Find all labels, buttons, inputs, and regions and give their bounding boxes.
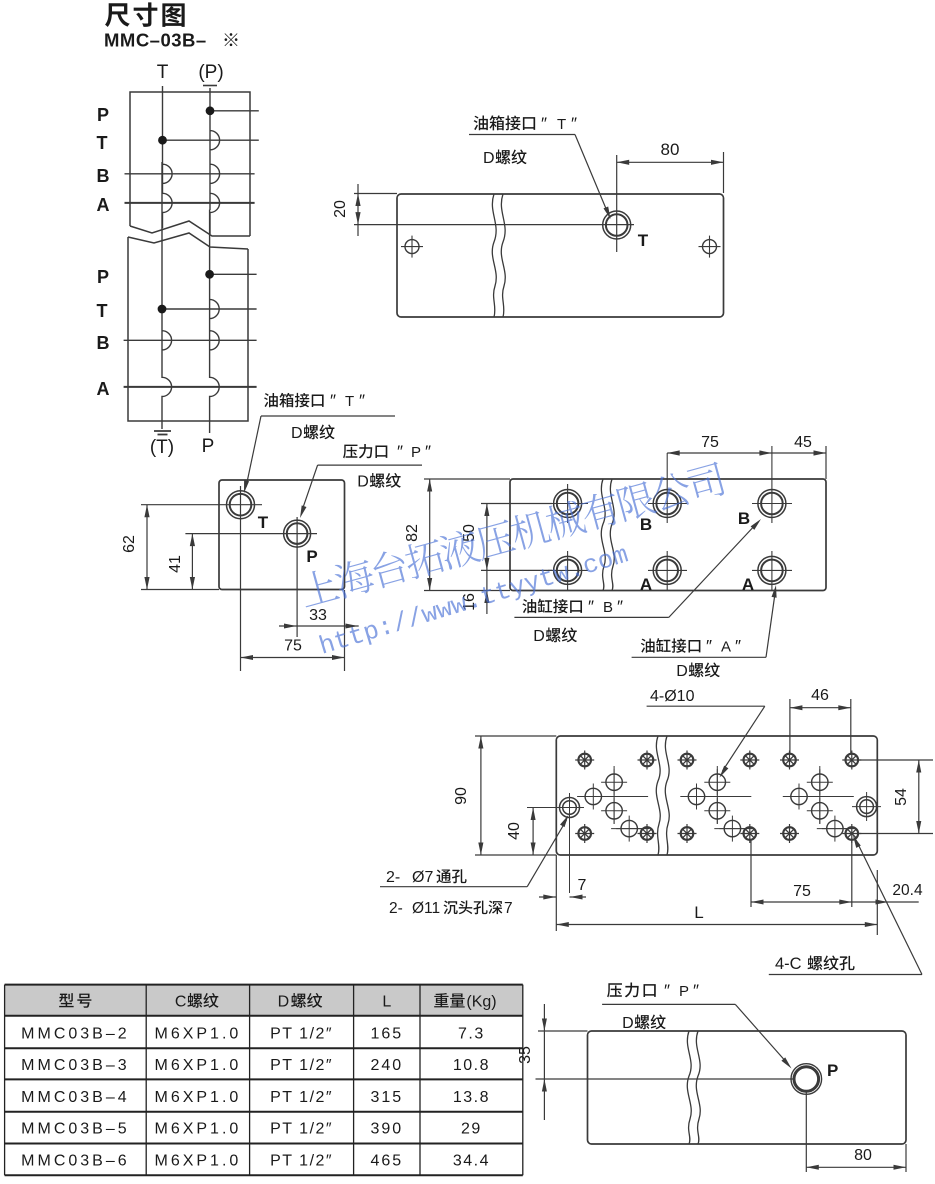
- svg-text:B: B: [640, 515, 652, 534]
- svg-text:P: P: [679, 983, 689, 1000]
- svg-text:L: L: [694, 903, 703, 922]
- svg-text:MMC–03B–: MMC–03B–: [104, 30, 207, 51]
- svg-text:D: D: [533, 628, 545, 645]
- svg-text:33: 33: [309, 607, 327, 624]
- svg-text:″: ″: [330, 391, 336, 410]
- svg-text:M6XP1.0: M6XP1.0: [154, 1121, 241, 1138]
- svg-text:P: P: [97, 267, 109, 287]
- svg-text:T: T: [97, 133, 108, 153]
- svg-text:A: A: [742, 575, 754, 594]
- svg-text:D: D: [622, 1015, 634, 1032]
- svg-text:T: T: [345, 393, 354, 410]
- svg-text:390: 390: [370, 1121, 403, 1138]
- svg-text:P: P: [202, 436, 215, 457]
- svg-text:7: 7: [578, 877, 587, 894]
- svg-text:M6XP1.0: M6XP1.0: [154, 1153, 241, 1170]
- svg-text:″: ″: [359, 391, 365, 410]
- svg-text:7: 7: [504, 900, 513, 917]
- svg-text:MMC03B–6: MMC03B–6: [21, 1153, 129, 1170]
- svg-text:4-C: 4-C: [775, 955, 802, 973]
- svg-text:2-: 2-: [386, 869, 400, 886]
- svg-text:MMC03B–2: MMC03B–2: [21, 1025, 129, 1042]
- svg-text:T: T: [157, 62, 169, 83]
- svg-text:A: A: [640, 575, 652, 594]
- svg-text:62: 62: [121, 535, 138, 553]
- svg-text:240: 240: [370, 1057, 403, 1074]
- svg-text:40: 40: [506, 822, 523, 840]
- svg-text:54: 54: [893, 788, 910, 806]
- svg-text:13.8: 13.8: [453, 1089, 490, 1106]
- svg-text:2-: 2-: [389, 900, 403, 917]
- svg-text:B: B: [603, 599, 613, 616]
- svg-text:″: ″: [541, 114, 547, 133]
- svg-text:P: P: [411, 444, 421, 461]
- svg-text:M6XP1.0: M6XP1.0: [154, 1089, 241, 1106]
- svg-text:T: T: [97, 301, 108, 321]
- svg-text:90: 90: [453, 787, 470, 805]
- svg-text:75: 75: [701, 434, 719, 451]
- svg-text:PT 1/2″: PT 1/2″: [270, 1057, 333, 1074]
- svg-text:41: 41: [167, 555, 184, 573]
- svg-text:(Kg): (Kg): [466, 994, 496, 1011]
- svg-text:45: 45: [794, 434, 812, 451]
- svg-text:(T): (T): [150, 437, 174, 458]
- svg-text:PT 1/2″: PT 1/2″: [270, 1153, 333, 1170]
- svg-text:80: 80: [854, 1147, 872, 1164]
- svg-text:D: D: [357, 474, 369, 491]
- svg-text:D: D: [278, 994, 290, 1011]
- svg-text:7.3: 7.3: [458, 1025, 485, 1042]
- svg-text:P: P: [97, 105, 109, 125]
- svg-text:80: 80: [661, 140, 680, 159]
- svg-text:PT 1/2″: PT 1/2″: [270, 1025, 333, 1042]
- svg-text:465: 465: [370, 1153, 403, 1170]
- svg-text:34.4: 34.4: [453, 1153, 490, 1170]
- svg-text:PT 1/2″: PT 1/2″: [270, 1121, 333, 1138]
- svg-text:MMC03B–3: MMC03B–3: [21, 1057, 129, 1074]
- svg-text:″: ″: [735, 637, 741, 656]
- svg-text:P: P: [827, 1061, 838, 1080]
- svg-text:MMC03B–5: MMC03B–5: [21, 1121, 129, 1138]
- svg-text:″: ″: [571, 114, 577, 133]
- svg-text:M6XP1.0: M6XP1.0: [154, 1025, 241, 1042]
- svg-text:B: B: [738, 509, 750, 528]
- svg-text:A: A: [97, 195, 110, 215]
- svg-text:MMC03B–4: MMC03B–4: [21, 1089, 129, 1106]
- svg-text:46: 46: [811, 687, 829, 704]
- svg-text:4-Ø10: 4-Ø10: [650, 688, 695, 705]
- svg-text:20.4: 20.4: [892, 882, 923, 899]
- svg-text:A: A: [97, 379, 110, 399]
- svg-text:D: D: [483, 150, 495, 167]
- svg-text:315: 315: [370, 1089, 403, 1106]
- svg-text:T: T: [258, 513, 269, 532]
- svg-text:″: ″: [588, 597, 594, 616]
- svg-text:D: D: [291, 425, 303, 442]
- svg-text:82: 82: [404, 524, 421, 542]
- svg-text:A: A: [721, 639, 731, 656]
- svg-text:L: L: [382, 994, 391, 1011]
- svg-text:B: B: [97, 333, 110, 353]
- svg-text:″: ″: [617, 597, 623, 616]
- svg-text:75: 75: [284, 638, 302, 655]
- svg-text:(P): (P): [198, 62, 223, 83]
- svg-text:29: 29: [461, 1121, 482, 1138]
- svg-text:″: ″: [693, 981, 699, 1000]
- svg-text:C: C: [175, 994, 187, 1011]
- svg-text:Ø7: Ø7: [412, 869, 433, 886]
- svg-text:PT 1/2″: PT 1/2″: [270, 1089, 333, 1106]
- svg-text:75: 75: [793, 883, 811, 900]
- svg-text:D: D: [676, 663, 688, 680]
- svg-text:10.8: 10.8: [453, 1057, 490, 1074]
- svg-text:Ø11: Ø11: [412, 900, 440, 917]
- svg-text:″: ″: [706, 637, 712, 656]
- svg-text:″: ″: [425, 442, 431, 461]
- svg-text:P: P: [306, 547, 317, 566]
- svg-text:165: 165: [370, 1025, 403, 1042]
- svg-text:20: 20: [332, 200, 349, 218]
- svg-text:″: ″: [397, 442, 403, 461]
- svg-text:T: T: [638, 231, 649, 250]
- svg-text:″: ″: [664, 981, 670, 1000]
- svg-text:M6XP1.0: M6XP1.0: [154, 1057, 241, 1074]
- svg-text:B: B: [97, 166, 110, 186]
- svg-text:T: T: [557, 116, 566, 133]
